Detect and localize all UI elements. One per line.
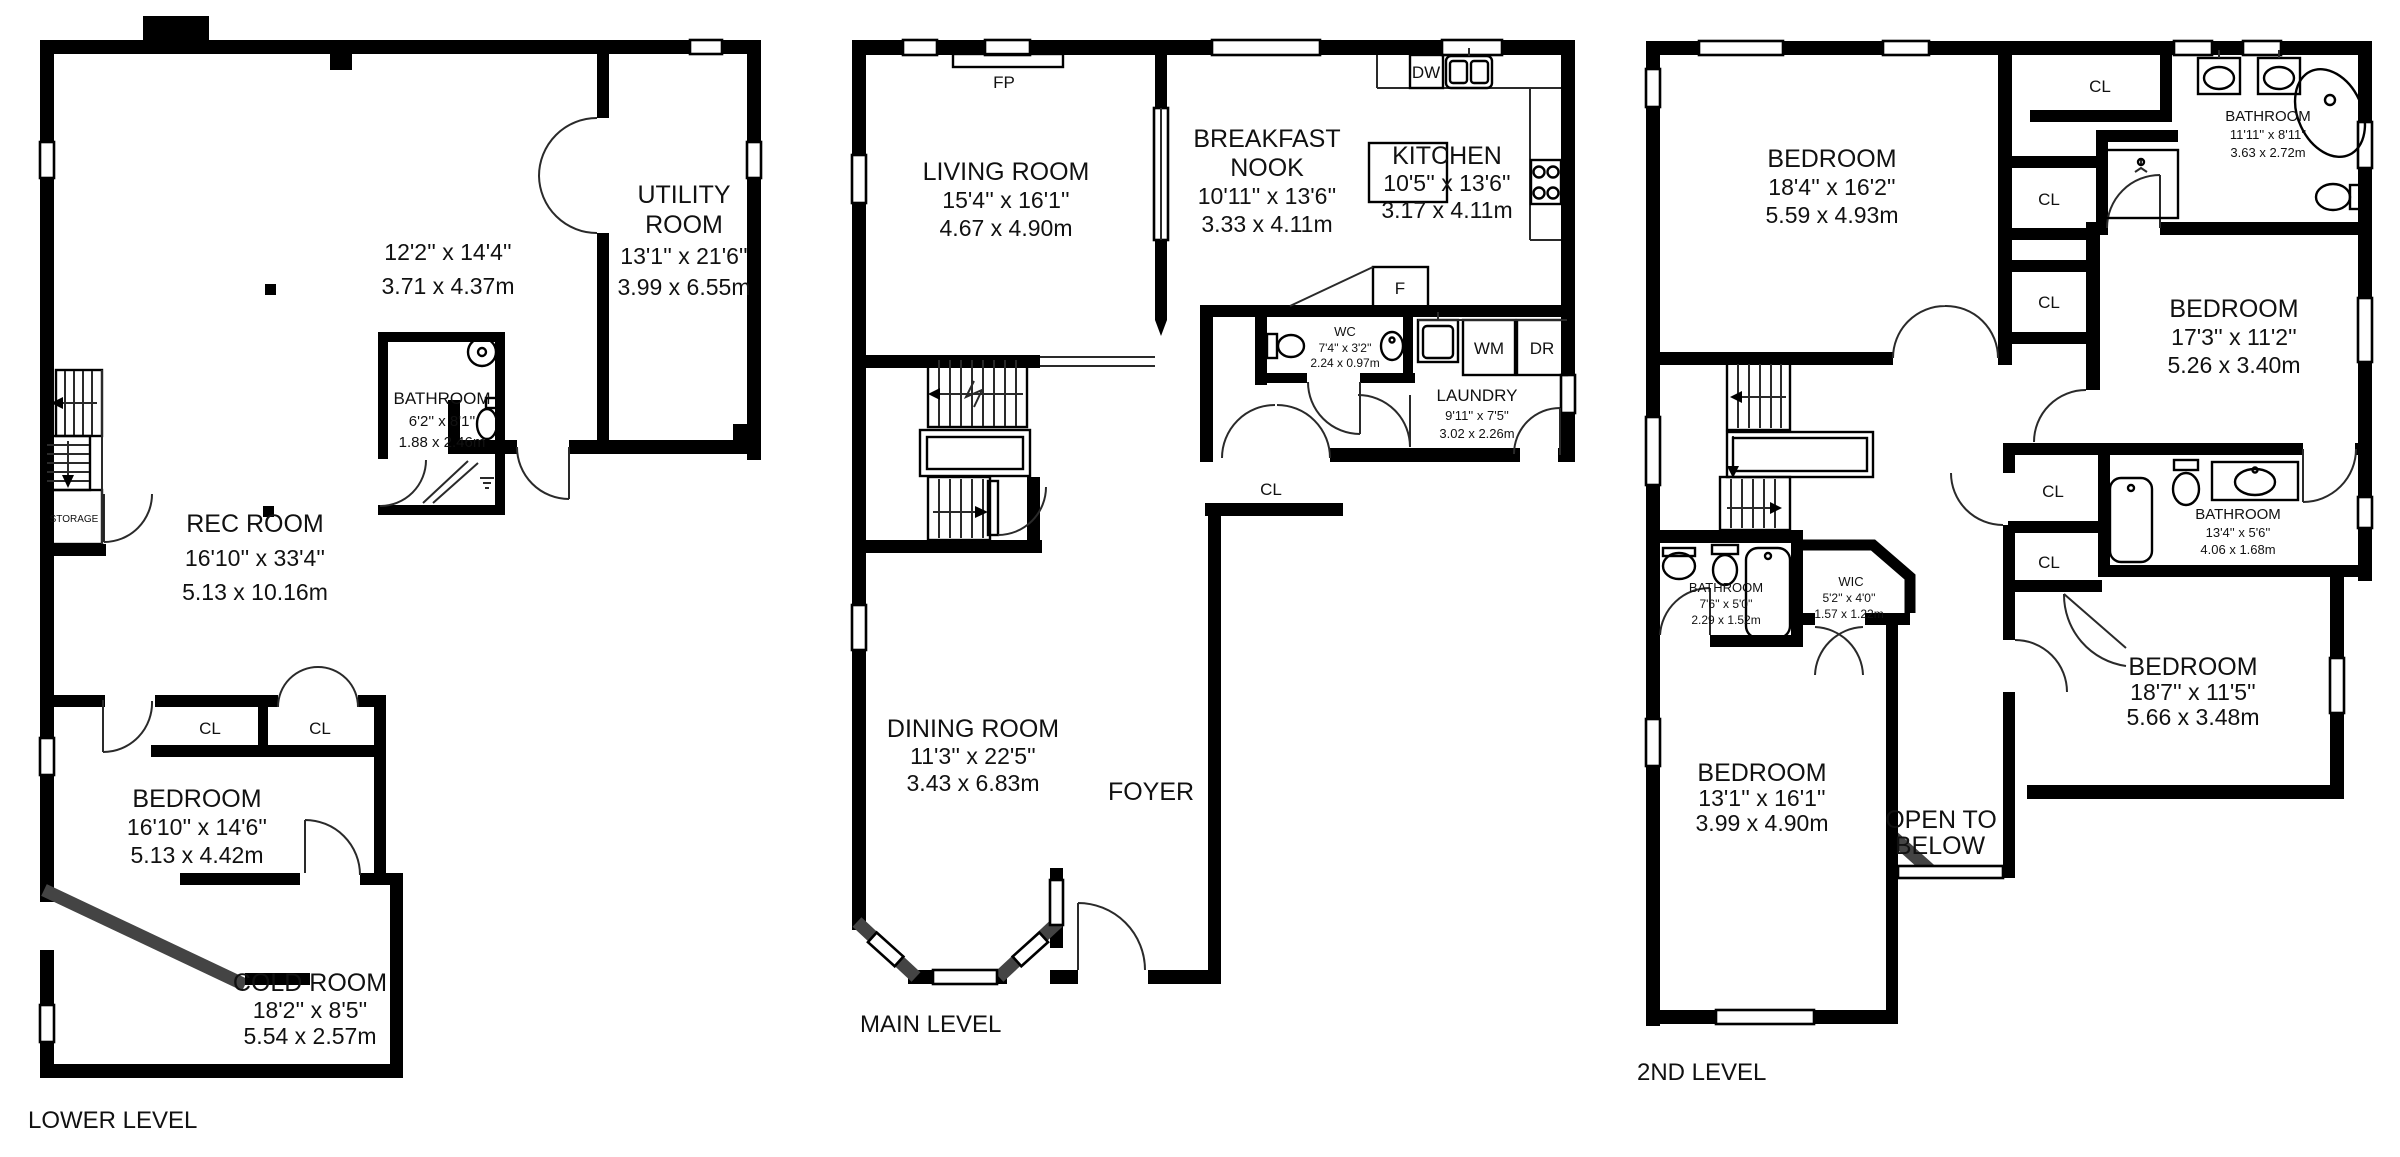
cold-room-label: COLD ROOM	[233, 969, 387, 997]
main-stairs	[920, 358, 1030, 540]
dining-room-dims-m: 3.43 x 6.83m	[907, 770, 1040, 796]
living-room-label: LIVING ROOM	[923, 158, 1090, 186]
closet-label: CL	[2089, 77, 2111, 96]
bedroom3-dims-ft: 18'7'' x 11'5''	[2130, 679, 2256, 705]
bedroom3-label: BEDROOM	[2128, 653, 2257, 681]
bedroom4-dims-ft: 13'1'' x 16'1''	[1698, 785, 1825, 811]
kitchen-label: KITCHEN	[1392, 142, 1502, 170]
rec-room-dims-ft: 16'10'' x 33'4''	[185, 545, 325, 571]
bathroom3-dims-ft: 7'6'' x 5'0''	[1699, 597, 1752, 611]
closet-label: CL	[2038, 190, 2060, 209]
dryer-label: DR	[1530, 339, 1555, 358]
wic-label: WIC	[1838, 574, 1863, 589]
bedroom-label: BEDROOM	[132, 785, 261, 813]
closet-label: CL	[2042, 482, 2064, 501]
open-to-below-label: OPEN TO	[1885, 806, 1997, 834]
closet-label: CL	[309, 719, 331, 738]
cold-room-dims-m: 5.54 x 2.57m	[244, 1023, 377, 1049]
second-level-title: 2ND LEVEL	[1637, 1059, 1766, 1086]
master-bedroom-dims-m: 5.59 x 4.93m	[1766, 202, 1899, 228]
bathroom2-dims-ft: 13'4'' x 5'6''	[2206, 525, 2271, 540]
floorplan-page: 12'2'' x 14'4'' 3.71 x 4.37m UTILITY ROO…	[0, 0, 2400, 1157]
breakfast-nook-label: BREAKFAST	[1193, 125, 1340, 153]
wc-label: WC	[1334, 324, 1356, 339]
bedroom2-label: BEDROOM	[2169, 295, 2298, 323]
room-dims-ft: 12'2'' x 14'4''	[384, 239, 511, 265]
main-level-title: MAIN LEVEL	[860, 1011, 1001, 1038]
bedroom2-dims-ft: 17'3'' x 11'2''	[2171, 324, 2297, 350]
wc-dims-m: 2.24 x 0.97m	[1310, 356, 1379, 370]
laundry-dims-ft: 9'11'' x 7'5''	[1445, 408, 1509, 423]
lower-level-plan: 12'2'' x 14'4'' 3.71 x 4.37m UTILITY ROO…	[28, 16, 761, 1134]
foyer-label: FOYER	[1108, 778, 1194, 806]
master-bedroom-dims-ft: 18'4'' x 16'2''	[1768, 174, 1895, 200]
lower-labels: 12'2'' x 14'4'' 3.71 x 4.37m UTILITY ROO…	[28, 181, 750, 1134]
lower-doors	[103, 118, 597, 875]
bedroom2-dims-m: 5.26 x 3.40m	[2168, 352, 2301, 378]
bedroom4-label: BEDROOM	[1697, 759, 1826, 787]
utility-room-label2: ROOM	[645, 211, 723, 239]
utility-dims-ft: 13'1'' x 21'6''	[620, 243, 747, 269]
rec-room-dims-m: 5.13 x 10.16m	[182, 579, 328, 605]
bathroom-dims-m: 1.88 x 2.46m	[399, 434, 486, 451]
bathroom1-dims-m: 3.63 x 2.72m	[2230, 145, 2305, 160]
master-bedroom-label: BEDROOM	[1767, 145, 1896, 173]
fireplace-label: FP	[993, 73, 1015, 92]
dining-room-dims-ft: 11'3'' x 22'5''	[910, 743, 1036, 769]
dishwasher-label: DW	[1412, 63, 1440, 82]
bathroom3-label: BATHROOM	[1689, 580, 1763, 595]
wc-dims-ft: 7'4'' x 3'2''	[1318, 341, 1371, 355]
kitchen-dims-ft: 10'5'' x 13'6''	[1383, 170, 1510, 196]
bathroom3-dims-m: 2.29 x 1.52m	[1691, 613, 1760, 627]
bedroom3-dims-m: 5.66 x 3.48m	[2127, 704, 2260, 730]
living-room-dims-ft: 15'4'' x 16'1''	[942, 187, 1069, 213]
fridge-label: F	[1395, 279, 1405, 298]
kitchen-dims-m: 3.17 x 4.11m	[1381, 197, 1512, 223]
floor-plan-diagram: 12'2'' x 14'4'' 3.71 x 4.37m UTILITY ROO…	[0, 0, 2400, 1157]
second-stairs	[1720, 362, 1873, 530]
bedroom-dims-ft: 16'10'' x 14'6''	[127, 814, 267, 840]
utility-dims-m: 3.99 x 6.55m	[618, 274, 751, 300]
breakfast-nook-dims-ft: 10'11'' x 13'6''	[1198, 183, 1336, 209]
bathroom2-dims-m: 4.06 x 1.68m	[2200, 542, 2275, 557]
closet-label: CL	[1260, 480, 1282, 499]
lower-level-title: LOWER LEVEL	[28, 1107, 197, 1134]
laundry-dims-m: 3.02 x 2.26m	[1439, 426, 1514, 441]
bathroom1-label: BATHROOM	[2225, 108, 2311, 125]
main-level-plan: LIVING ROOM 15'4'' x 16'1'' 4.67 x 4.90m…	[852, 40, 1575, 1038]
wic-dims-m: 1.57 x 1.22m	[1814, 607, 1883, 621]
bathroom1-dims-ft: 11'11'' x 8'11''	[2230, 127, 2306, 142]
closet-label: CL	[2038, 553, 2060, 572]
laundry-label: LAUNDRY	[1437, 386, 1518, 405]
cold-room-dims-ft: 18'2'' x 8'5''	[253, 997, 368, 1023]
bathroom-label: BATHROOM	[394, 389, 491, 408]
bedroom4-dims-m: 3.99 x 4.90m	[1696, 810, 1829, 836]
rec-room-label: REC ROOM	[186, 510, 324, 538]
washer-label: WM	[1474, 339, 1504, 358]
breakfast-nook-label2: NOOK	[1230, 154, 1304, 182]
storage-label: STORAGE	[50, 514, 99, 525]
bedroom-dims-m: 5.13 x 4.42m	[131, 842, 264, 868]
dining-room-label: DINING ROOM	[887, 715, 1059, 743]
utility-room-label: UTILITY	[637, 181, 730, 209]
second-level-plan: BEDROOM 18'4'' x 16'2'' 5.59 x 4.93m BAT…	[1637, 41, 2378, 1086]
bathroom2-label: BATHROOM	[2195, 506, 2281, 523]
closet-label: CL	[2038, 293, 2060, 312]
breakfast-nook-dims-m: 3.33 x 4.11m	[1201, 211, 1332, 237]
open-to-below-label2: BELOW	[1895, 832, 1986, 860]
closet-label: CL	[199, 719, 221, 738]
lower-walls	[40, 16, 761, 1078]
living-room-dims-m: 4.67 x 4.90m	[940, 215, 1073, 241]
wic-dims-ft: 5'2'' x 4'0''	[1822, 591, 1875, 605]
bathroom-dims-ft: 6'2'' x 8'1''	[409, 413, 476, 430]
room-dims-m: 3.71 x 4.37m	[382, 273, 515, 299]
